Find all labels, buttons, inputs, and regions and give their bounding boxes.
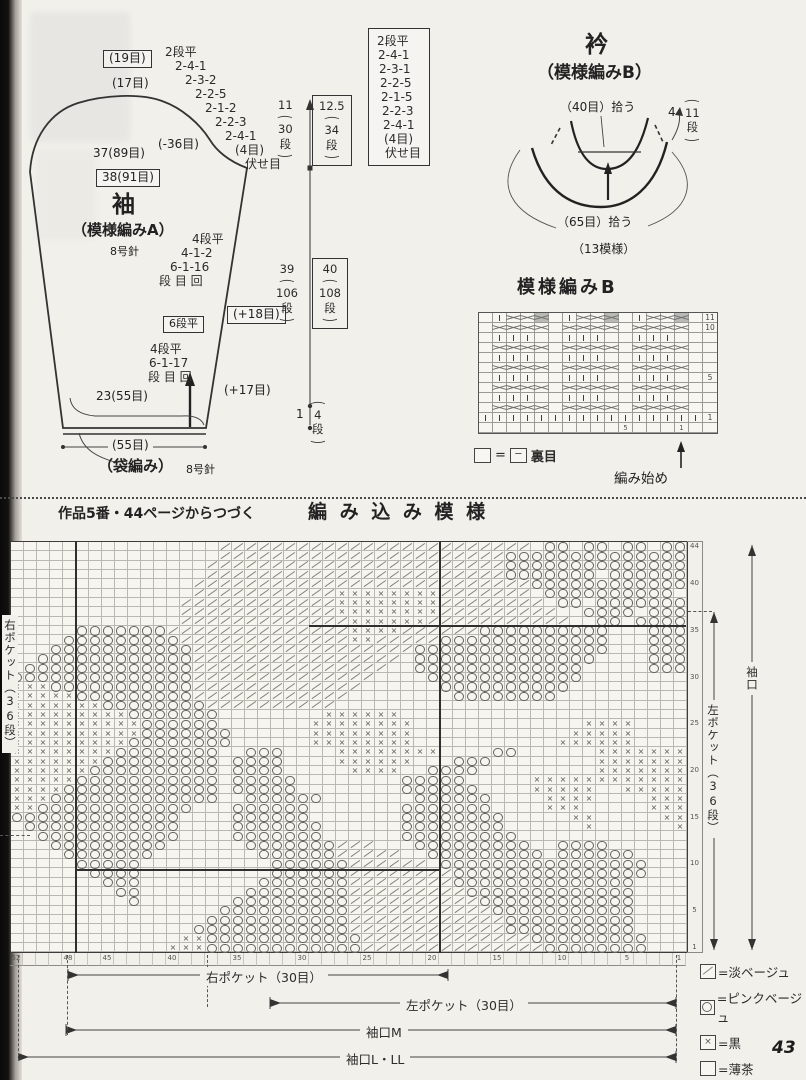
colorwork-cell: [518, 813, 531, 822]
colorwork-cell: [232, 943, 245, 952]
colorwork-cell: ×: [414, 589, 427, 598]
colorwork-cell: ×: [24, 729, 37, 738]
patternB-cell: [493, 373, 507, 383]
colorwork-cell: [24, 813, 37, 822]
colorwork-cell: [596, 906, 609, 915]
colorwork-cell: [596, 924, 609, 933]
colorwork-cell: [323, 542, 336, 551]
colorwork-cell: [89, 673, 102, 682]
colorwork-cell: ×: [76, 701, 89, 710]
colorwork-cell: [336, 561, 349, 570]
patternB-cell: [521, 393, 535, 403]
colorwork-cell: [50, 542, 63, 551]
colorwork-cell: ×: [89, 710, 102, 719]
colorwork-cell: [362, 841, 375, 850]
colorwork-cell: [492, 859, 505, 868]
colorwork-cell: [505, 775, 518, 784]
colorwork-cell: [609, 663, 622, 672]
colorwork-cell: [219, 887, 232, 896]
colorwork-cell: [154, 579, 167, 588]
colorwork-cell: [570, 561, 583, 570]
dashed-guide: [18, 955, 19, 1061]
colorwork-cell: ×: [362, 598, 375, 607]
colorwork-cell: [89, 915, 102, 924]
colorwork-cell: [232, 645, 245, 654]
colorwork-cell: [219, 729, 232, 738]
colorwork-cell: ×: [401, 738, 414, 747]
patternB-cell: [507, 423, 521, 433]
colorwork-cell: [661, 896, 674, 905]
patternB-cell: [507, 353, 521, 363]
colorwork-cell: [570, 906, 583, 915]
colorwork-cell: [453, 822, 466, 831]
colorwork-cell: ×: [349, 635, 362, 644]
colorwork-cell: [453, 598, 466, 607]
column-number: [530, 953, 543, 966]
colorwork-cell: [284, 710, 297, 719]
row-number: 40: [687, 579, 702, 588]
colorwork-cell: ×: [37, 738, 50, 747]
patternB-cell: [647, 403, 661, 413]
colorwork-cell: [271, 924, 284, 933]
patternB-cell: [563, 393, 577, 403]
row-number: [687, 551, 702, 560]
colorwork-cell: [284, 561, 297, 570]
colorwork-cell: [180, 729, 193, 738]
colorwork-cell: [674, 729, 687, 738]
colorwork-cell: [258, 682, 271, 691]
colorwork-cell: [271, 896, 284, 905]
colorwork-cell: [297, 682, 310, 691]
colorwork-cell: [50, 579, 63, 588]
colorwork-cell: [271, 626, 284, 635]
colorwork-cell: [128, 850, 141, 859]
list-line: 2-3-1: [379, 62, 421, 76]
colorwork-cell: [245, 887, 258, 896]
colorwork-cell: [557, 607, 570, 616]
colorwork-cell: [505, 654, 518, 663]
patternB-cell: [619, 373, 633, 383]
colorwork-cell: [193, 542, 206, 551]
patternB-cell: [493, 423, 507, 433]
colorwork-cell: [206, 663, 219, 672]
colorwork-cell: ×: [349, 719, 362, 728]
colorwork-cell: [141, 813, 154, 822]
colorwork-cell: [336, 887, 349, 896]
colorwork-cell: [466, 635, 479, 644]
colorwork-cell: [349, 654, 362, 663]
colorwork-cell: [544, 906, 557, 915]
colorwork-cell: [596, 831, 609, 840]
colorwork-cell: [232, 635, 245, 644]
colorwork-cell: [570, 701, 583, 710]
colorwork-cell: [245, 747, 258, 756]
colorwork-cell: ×: [76, 729, 89, 738]
colorwork-cell: [89, 626, 102, 635]
colorwork-cell: [375, 561, 388, 570]
colorwork-cell: [362, 859, 375, 868]
colorwork-cell: [596, 859, 609, 868]
colorwork-cell: [245, 878, 258, 887]
colorwork-cell: [180, 850, 193, 859]
sleeve-cuff-width: 23(55目): [96, 390, 148, 404]
colorwork-cell: [440, 934, 453, 943]
patternB-cell: [507, 333, 521, 343]
colorwork-cell: ×: [336, 589, 349, 598]
purl-dash-box: ─: [510, 448, 527, 463]
colorwork-cell: [37, 803, 50, 812]
colorwork-cell: [544, 822, 557, 831]
colorwork-cell: ×: [37, 682, 50, 691]
colorwork-cell: [89, 598, 102, 607]
patternB-cell: [535, 313, 549, 323]
colorwork-cell: [570, 943, 583, 952]
colorwork-cell: [466, 654, 479, 663]
colorwork-cell: [648, 934, 661, 943]
colorwork-cell: [310, 943, 323, 952]
colorwork-cell: ×: [24, 766, 37, 775]
colorwork-cell: [596, 645, 609, 654]
colorwork-cell: [141, 943, 154, 952]
colorwork-cell: [674, 850, 687, 859]
column-number: 48: [62, 953, 75, 966]
colorwork-cell: [674, 934, 687, 943]
colorwork-cell: [141, 701, 154, 710]
colorwork-cell: [622, 841, 635, 850]
colorwork-cell: [518, 868, 531, 877]
colorwork-cell: [310, 850, 323, 859]
colorwork-cell: [570, 924, 583, 933]
colorwork-cell: ×: [336, 719, 349, 728]
colorwork-cell: [518, 561, 531, 570]
colorwork-cell: [284, 878, 297, 887]
colorwork-cell: [232, 747, 245, 756]
column-number: [309, 953, 322, 966]
colorwork-cell: [115, 617, 128, 626]
colorwork-cell: [453, 813, 466, 822]
colorwork-cell: [245, 635, 258, 644]
colorwork-cell: [570, 542, 583, 551]
colorwork-cell: [466, 551, 479, 560]
colorwork-cell: [24, 868, 37, 877]
colorwork-cell: [570, 551, 583, 560]
section-divider: [0, 497, 806, 499]
colorwork-cell: [466, 729, 479, 738]
colorwork-cell: [310, 757, 323, 766]
colorwork-cell: [557, 626, 570, 635]
patternB-cell: [633, 333, 647, 343]
colorwork-cell: [141, 915, 154, 924]
colorwork-cell: [102, 598, 115, 607]
colorwork-cell: [518, 906, 531, 915]
colorwork-cell: [50, 850, 63, 859]
colorwork-cell: [349, 775, 362, 784]
colorwork-cell: [180, 645, 193, 654]
patternB-cell: [493, 343, 507, 353]
colorwork-cell: [375, 794, 388, 803]
colorwork-cell: [50, 813, 63, 822]
colorwork-cell: ×: [375, 747, 388, 756]
colorwork-cell: [37, 887, 50, 896]
colorwork-cell: [50, 635, 63, 644]
colorwork-cell: ×: [50, 785, 63, 794]
colorwork-cell: [245, 859, 258, 868]
colorwork-cell: [466, 831, 479, 840]
colorwork-cell: [115, 785, 128, 794]
colorwork-cell: [401, 561, 414, 570]
colorwork-cell: [466, 859, 479, 868]
colorwork-cell: [323, 747, 336, 756]
colorwork-cell: [518, 719, 531, 728]
column-number: [504, 953, 517, 966]
colorwork-cell: [375, 924, 388, 933]
colorwork-cell: ×: [349, 738, 362, 747]
colorwork-cell: [583, 645, 596, 654]
colorwork-cell: [297, 673, 310, 682]
colorwork-cell: [11, 542, 24, 551]
colorwork-cell: [24, 551, 37, 560]
colorwork-cell: [323, 635, 336, 644]
colorwork-cell: [362, 551, 375, 560]
patternB-cell: [605, 403, 619, 413]
colorwork-cell: [297, 589, 310, 598]
colorwork-cell: [206, 757, 219, 766]
colorwork-cell: [128, 785, 141, 794]
colorwork-cell: [661, 878, 674, 887]
colorwork-cell: [89, 822, 102, 831]
colorwork-cell: [388, 934, 401, 943]
patternB-cell: [605, 343, 619, 353]
colorwork-cell: [89, 794, 102, 803]
colorwork-cell: ×: [11, 785, 24, 794]
colorwork-cell: [11, 589, 24, 598]
colorwork-cell: [336, 934, 349, 943]
colorwork-cell: [37, 561, 50, 570]
colorwork-cell: ×: [24, 691, 37, 700]
patternB-cell: [661, 413, 675, 423]
colorwork-cell: [492, 663, 505, 672]
colorwork-cell: [11, 822, 24, 831]
colorwork-cell: [284, 691, 297, 700]
colorwork-cell: [271, 598, 284, 607]
colorwork-cell: [661, 645, 674, 654]
colorwork-cell: [622, 896, 635, 905]
colorwork-cell: [193, 561, 206, 570]
colorwork-cell: [167, 757, 180, 766]
colorwork-cell: [128, 589, 141, 598]
colorwork-cell: [258, 878, 271, 887]
colorwork-cell: [674, 859, 687, 868]
colorwork-cell: [518, 570, 531, 579]
patternB-cell: [591, 333, 605, 343]
colorwork-cell: [531, 542, 544, 551]
colorwork-cell: [622, 645, 635, 654]
colorwork-cell: [232, 757, 245, 766]
colorwork-cell: [310, 841, 323, 850]
colorwork-cell: [284, 766, 297, 775]
colorwork-cell: ×: [674, 766, 687, 775]
colorwork-cell: [271, 887, 284, 896]
colorwork-cell: ×: [674, 794, 687, 803]
colorwork-cell: [544, 831, 557, 840]
column-number: [543, 953, 556, 966]
colorwork-cell: [50, 663, 63, 672]
colorwork-cell: [583, 766, 596, 775]
colorwork-cell: [388, 841, 401, 850]
patternB-cell: [591, 383, 605, 393]
collar-pickup-top: （40目）拾う: [560, 101, 635, 115]
colorwork-cell: [531, 915, 544, 924]
colorwork-cell: [648, 673, 661, 682]
colorwork-cell: [518, 785, 531, 794]
colorwork-cell: [115, 831, 128, 840]
colorwork-chart: ××××××××××××××××××××××××××××××××××××××××…: [10, 541, 688, 953]
colorwork-cell: [401, 850, 414, 859]
colorwork-cell: [674, 915, 687, 924]
colorwork-cell: [258, 589, 271, 598]
colorwork-cell: [310, 663, 323, 672]
colorwork-cell: ×: [102, 747, 115, 756]
colorwork-cell: [102, 915, 115, 924]
colorwork-cell: [531, 924, 544, 933]
column-number: 25: [361, 953, 374, 966]
colorwork-cell: [310, 878, 323, 887]
colorwork-cell: ×: [635, 747, 648, 756]
colorwork-cell: [479, 570, 492, 579]
list-line: 2-2-3: [215, 115, 281, 129]
colorwork-cell: ×: [349, 626, 362, 635]
colorwork-cell: [323, 673, 336, 682]
colorwork-cell: [37, 617, 50, 626]
colorwork-cell: ×: [37, 710, 50, 719]
colorwork-cell: [115, 663, 128, 672]
colorwork-cell: [583, 841, 596, 850]
colorwork-cell: [466, 645, 479, 654]
colorwork-cell: [362, 924, 375, 933]
colorwork-cell: [76, 589, 89, 598]
colorwork-cell: [492, 934, 505, 943]
colorwork-cell: [141, 589, 154, 598]
colorwork-cell: [518, 645, 531, 654]
colorwork-cell: [440, 673, 453, 682]
colorwork-cell: [323, 682, 336, 691]
colorwork-cell: [492, 738, 505, 747]
colorwork-cell: [232, 841, 245, 850]
colorwork-cell: [76, 570, 89, 579]
colorwork-cell: [388, 859, 401, 868]
colorwork-cell: [609, 607, 622, 616]
colorwork-cell: [609, 878, 622, 887]
colorwork-cell: [648, 915, 661, 924]
colorwork-cell: [154, 775, 167, 784]
colorwork-cell: [531, 589, 544, 598]
colorwork-cell: [505, 663, 518, 672]
colorwork-cell: [518, 794, 531, 803]
colorwork-cell: [375, 645, 388, 654]
colorwork-cell: [453, 803, 466, 812]
colorwork-cell: [50, 924, 63, 933]
colorwork-cell: [258, 607, 271, 616]
colorwork-cell: [24, 561, 37, 570]
colorwork-cell: [258, 561, 271, 570]
colorwork-cell: [154, 813, 167, 822]
colorwork-cell: [531, 738, 544, 747]
colorwork-cell: [193, 738, 206, 747]
colorwork-cell: [271, 878, 284, 887]
colorwork-cell: [76, 813, 89, 822]
colorwork-cell: [24, 859, 37, 868]
colorwork-cell: [414, 682, 427, 691]
colorwork-cell: [544, 747, 557, 756]
colorwork-cell: [180, 607, 193, 616]
colorwork-cell: [401, 766, 414, 775]
colorwork-cell: [492, 682, 505, 691]
colorwork-cell: [414, 915, 427, 924]
colorwork-cell: [245, 924, 258, 933]
colorwork-cell: [89, 645, 102, 654]
colorwork-cell: ×: [388, 757, 401, 766]
colorwork-cell: [414, 673, 427, 682]
colorwork-cell: [141, 635, 154, 644]
colorwork-cell: [479, 579, 492, 588]
column-number: [517, 953, 530, 966]
colorwork-cell: ×: [115, 729, 128, 738]
colorwork-cell: [297, 813, 310, 822]
colorwork-cell: [297, 570, 310, 579]
colorwork-cell: [336, 813, 349, 822]
colorwork-cell: [609, 924, 622, 933]
colorwork-cell: [180, 896, 193, 905]
colorwork-cell: [102, 934, 115, 943]
colorwork-cell: [453, 915, 466, 924]
colorwork-cell: [661, 719, 674, 728]
colorwork-cell: ×: [336, 607, 349, 616]
colorwork-cell: [388, 803, 401, 812]
colorwork-cell: [440, 645, 453, 654]
colorwork-cell: [297, 747, 310, 756]
colorwork-cell: [206, 831, 219, 840]
colorwork-cell: [323, 915, 336, 924]
colorwork-cell: [492, 785, 505, 794]
colorwork-cell: ×: [24, 794, 37, 803]
colorwork-cell: ×: [583, 738, 596, 747]
colorwork-cell: [362, 775, 375, 784]
colorwork-cell: [206, 710, 219, 719]
patternB-cell: [549, 413, 563, 423]
colorwork-cell: [206, 561, 219, 570]
colorwork-cell: [622, 859, 635, 868]
colorwork-cell: [271, 747, 284, 756]
colorwork-cell: [245, 607, 258, 616]
colorwork-cell: ×: [115, 719, 128, 728]
colorwork-cell: [440, 542, 453, 551]
colorwork-cell: [271, 934, 284, 943]
colorwork-cell: [219, 896, 232, 905]
list-line: 2-4-1: [378, 48, 421, 62]
patternB-cell: [577, 353, 591, 363]
legend-symbol-box: [700, 964, 716, 979]
patternB-cell: [479, 423, 493, 433]
sleeve-cap-dim-boxed: 12.5( 34段 ): [312, 95, 352, 166]
colorwork-cell: [557, 654, 570, 663]
colorwork-cell: [479, 626, 492, 635]
colorwork-cell: ×: [310, 729, 323, 738]
colorwork-cell: [128, 617, 141, 626]
row-number: 20: [687, 766, 702, 775]
legend-symbol-box: ×: [700, 1035, 716, 1050]
colorwork-cell: [635, 673, 648, 682]
patternB-cell: [479, 373, 493, 383]
